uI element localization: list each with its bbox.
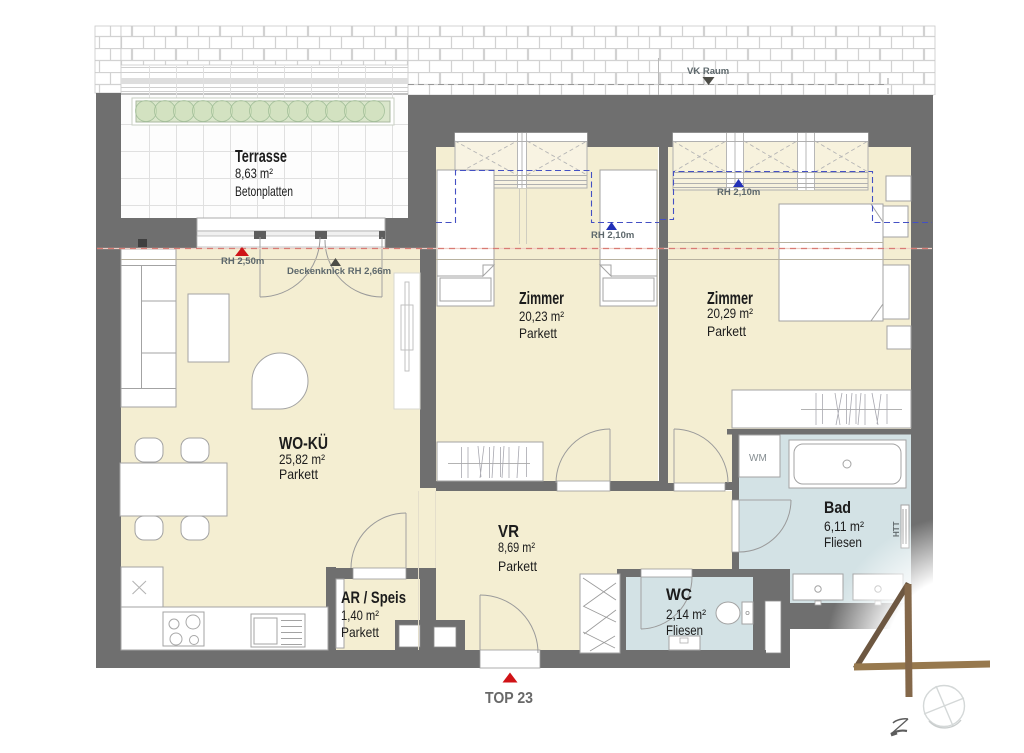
- svg-text:2,14 m²: 2,14 m²: [666, 606, 706, 622]
- svg-text:8,69 m²: 8,69 m²: [498, 539, 535, 555]
- svg-text:AR / Speis: AR / Speis: [341, 589, 406, 607]
- svg-text:TOP 23: TOP 23: [485, 690, 533, 707]
- svg-text:8,63 m²: 8,63 m²: [235, 165, 273, 181]
- svg-text:WC: WC: [666, 586, 692, 604]
- svg-text:WO-KÜ: WO-KÜ: [279, 433, 328, 453]
- svg-text:Parkett: Parkett: [341, 624, 379, 640]
- svg-text:Deckenknick RH 2,66m: Deckenknick RH 2,66m: [287, 266, 391, 277]
- svg-text:Terrasse: Terrasse: [235, 146, 287, 166]
- svg-text:RH 2,50m: RH 2,50m: [221, 256, 264, 267]
- svg-text:VR: VR: [498, 521, 519, 541]
- svg-text:25,82 m²: 25,82 m²: [279, 451, 325, 467]
- svg-text:1,40 m²: 1,40 m²: [341, 607, 379, 623]
- svg-text:20,29 m²: 20,29 m²: [707, 305, 753, 321]
- svg-text:RH 2,10m: RH 2,10m: [717, 187, 760, 198]
- svg-text:Parkett: Parkett: [519, 325, 557, 341]
- svg-text:Parkett: Parkett: [498, 558, 537, 574]
- svg-text:Parkett: Parkett: [279, 466, 318, 482]
- svg-text:Parkett: Parkett: [707, 323, 746, 339]
- svg-text:RH 2,10m: RH 2,10m: [591, 230, 634, 241]
- svg-text:Fliesen: Fliesen: [666, 622, 703, 638]
- svg-text:Zimmer: Zimmer: [519, 288, 564, 308]
- svg-text:20,23 m²: 20,23 m²: [519, 308, 564, 324]
- svg-text:Betonplatten: Betonplatten: [235, 183, 293, 199]
- svg-text:VK Raum: VK Raum: [687, 66, 729, 77]
